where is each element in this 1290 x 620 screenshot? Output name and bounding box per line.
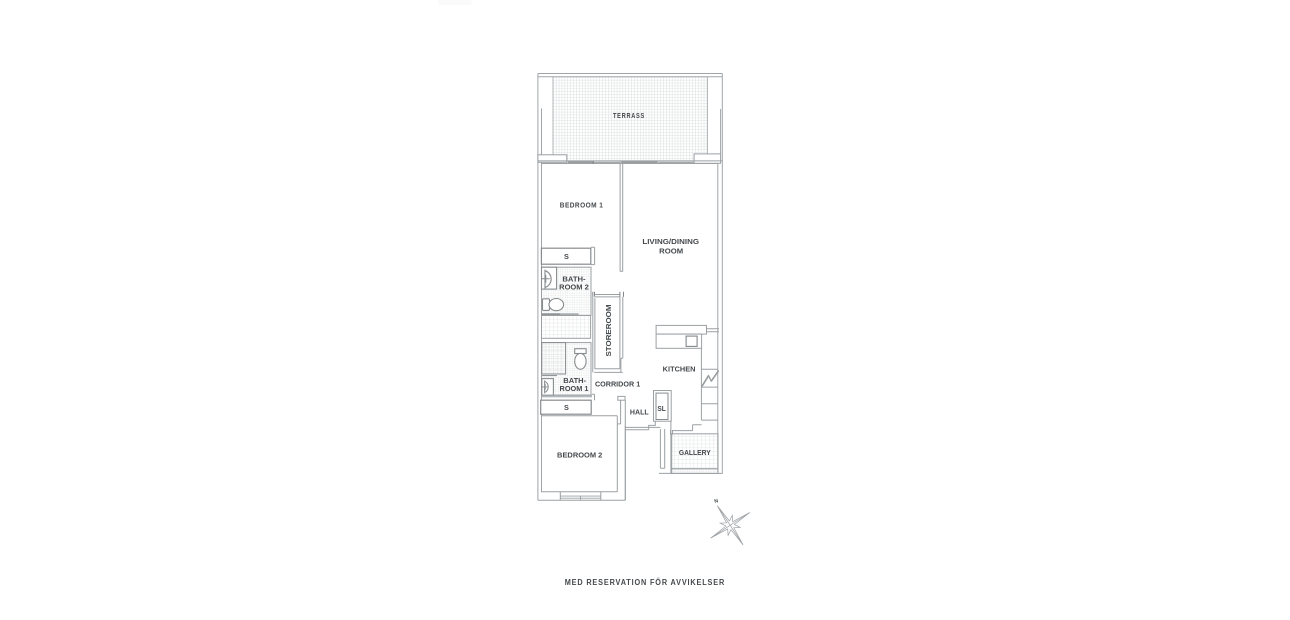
svg-text:STOREROOM: STOREROOM — [604, 305, 613, 357]
svg-text:KITCHEN: KITCHEN — [663, 365, 696, 374]
svg-text:ROOM: ROOM — [659, 246, 683, 255]
svg-text:CORRIDOR 1: CORRIDOR 1 — [595, 380, 640, 389]
svg-text:GALLERY: GALLERY — [679, 448, 711, 457]
svg-text:HALL: HALL — [630, 407, 649, 416]
svg-text:ROOM 2: ROOM 2 — [559, 283, 589, 292]
svg-text:SL: SL — [657, 404, 666, 413]
svg-text:ROOM 1: ROOM 1 — [560, 384, 589, 393]
svg-text:S: S — [564, 403, 569, 412]
svg-text:S: S — [564, 252, 569, 261]
svg-text:BEDROOM 2: BEDROOM 2 — [557, 451, 602, 460]
svg-text:TERRASS: TERRASS — [613, 111, 645, 120]
svg-text:LIVING/DINING: LIVING/DINING — [642, 237, 699, 246]
svg-text:MED RESERVATION FÖR AVVIKELSER: MED RESERVATION FÖR AVVIKELSER — [565, 577, 725, 587]
svg-text:BEDROOM 1: BEDROOM 1 — [560, 200, 604, 209]
